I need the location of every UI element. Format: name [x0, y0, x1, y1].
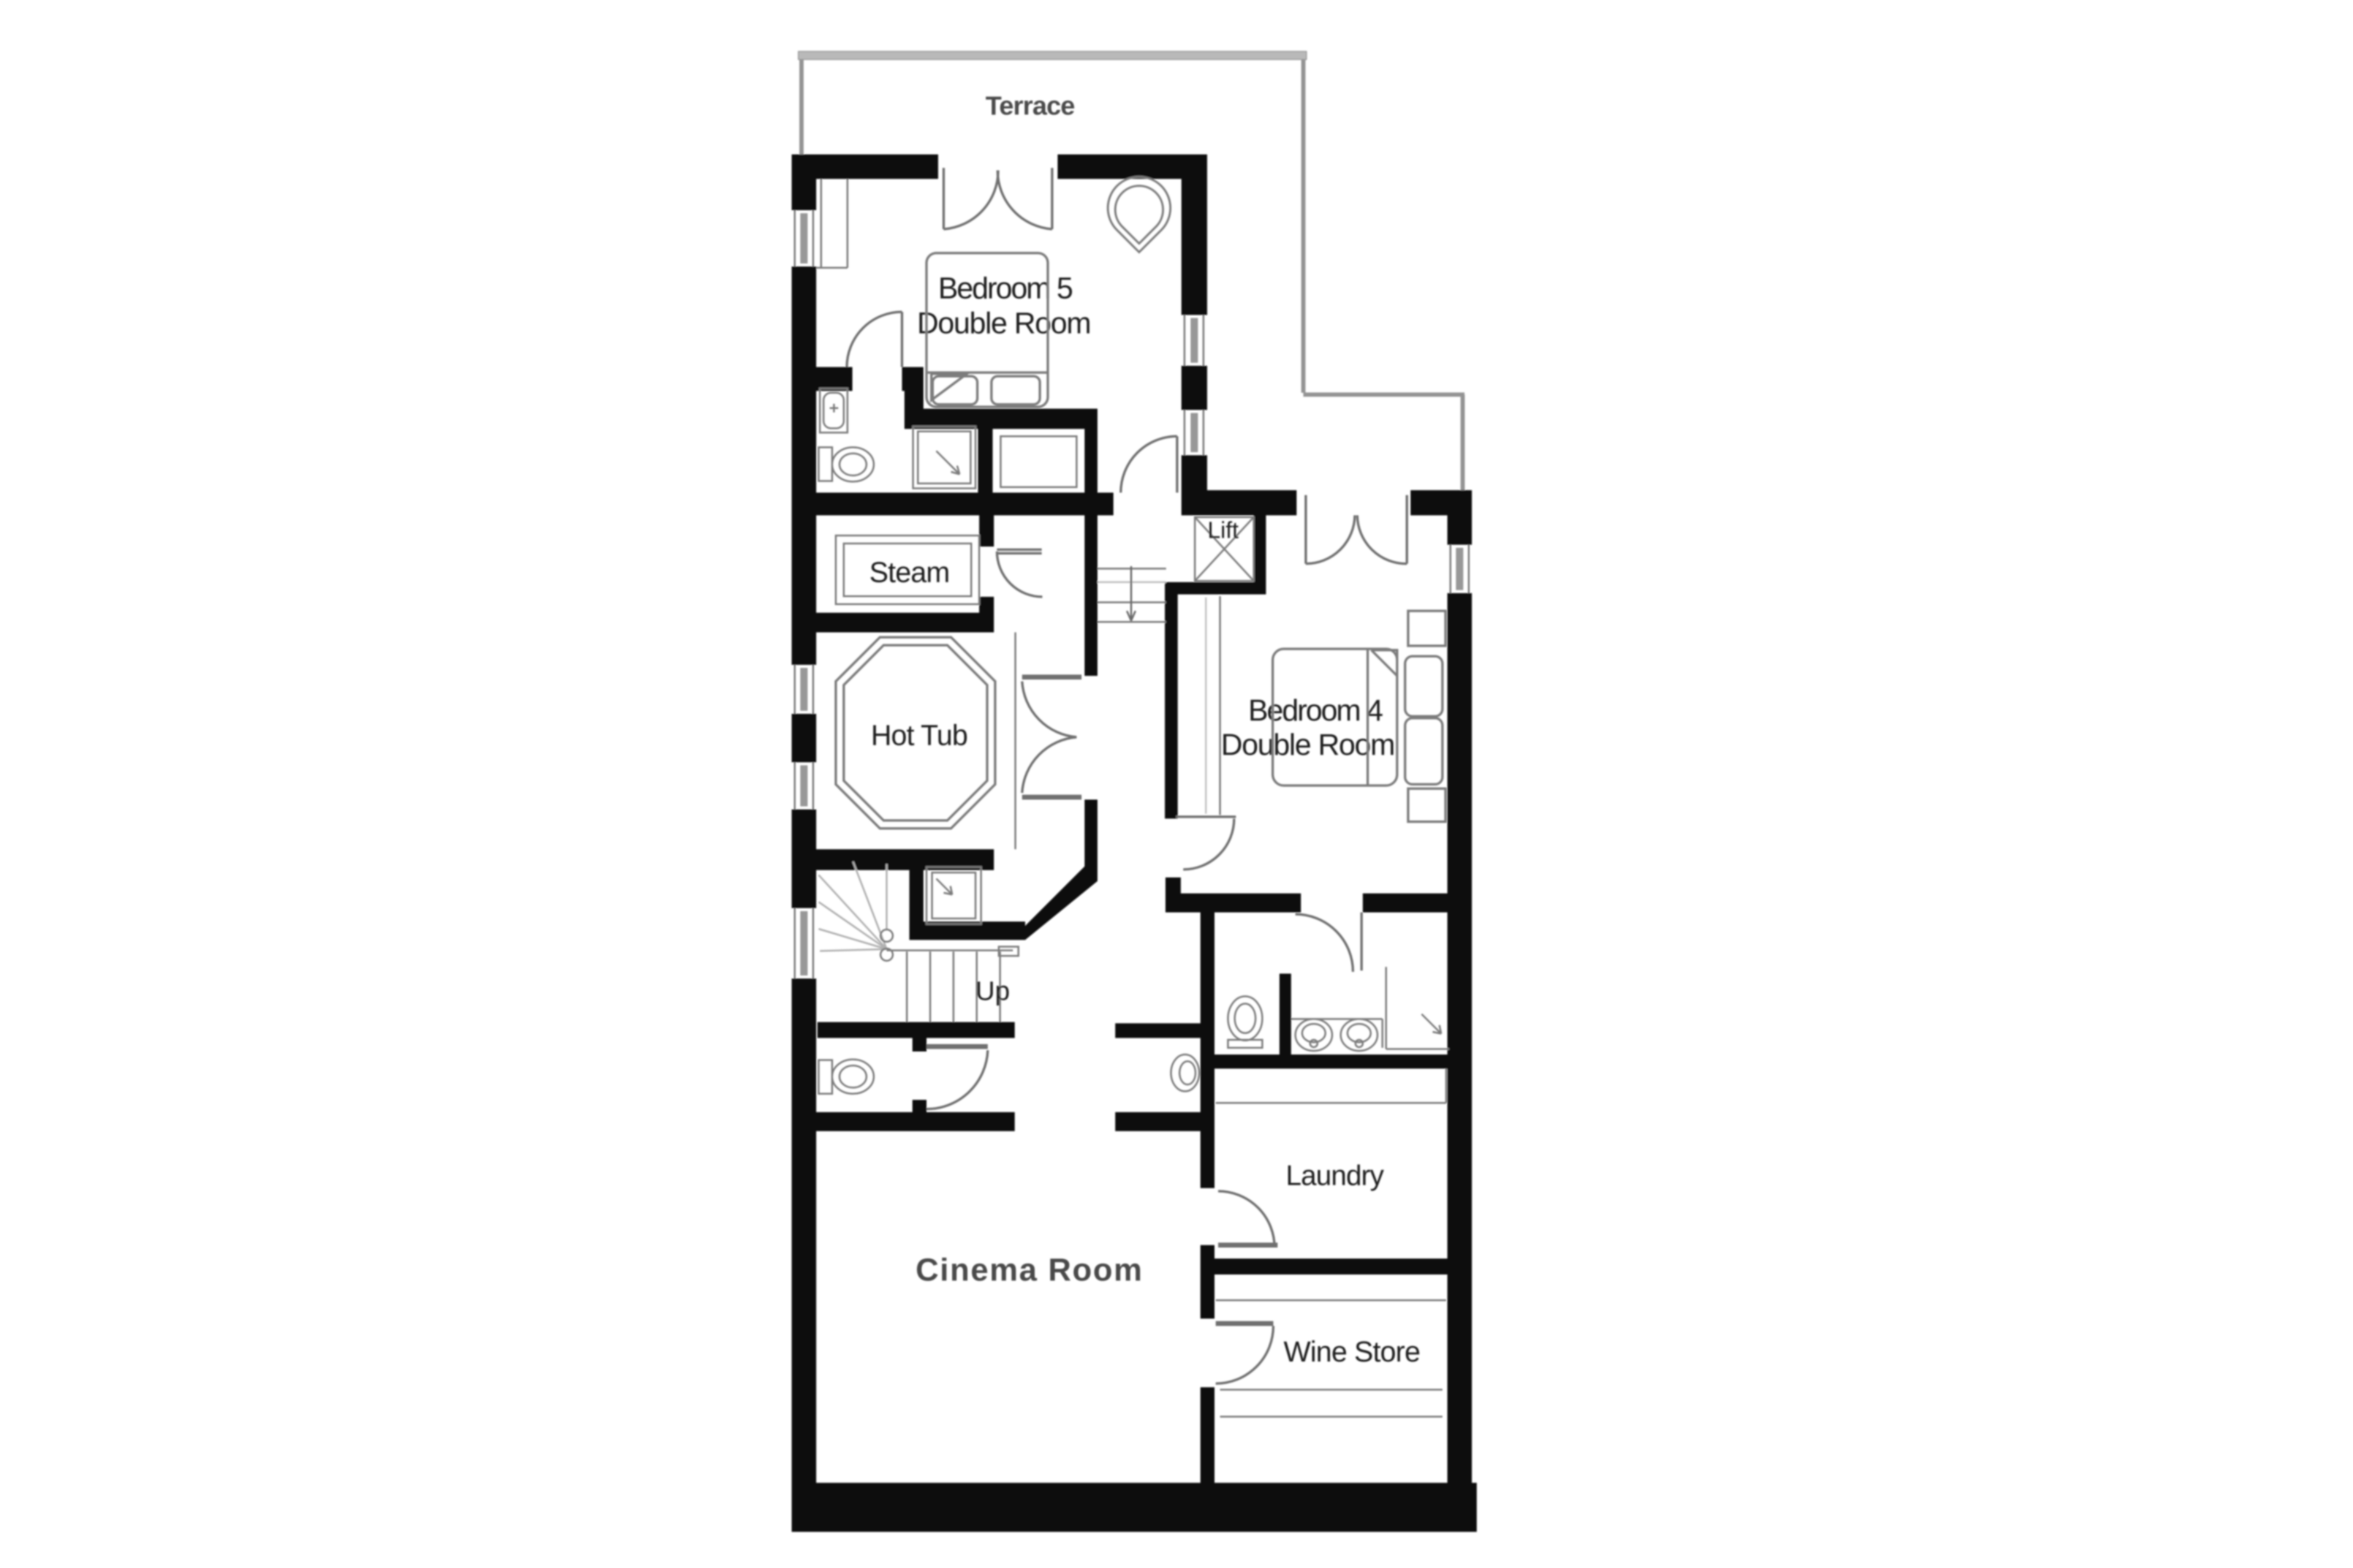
svg-text:Up: Up [976, 976, 1010, 1006]
svg-text:Steam: Steam [870, 556, 950, 588]
svg-text:Laundry: Laundry [1286, 1159, 1384, 1191]
svg-text:Cinema Room: Cinema Room [915, 1252, 1143, 1288]
svg-text:Double Room: Double Room [917, 307, 1090, 340]
svg-text:Terrace: Terrace [985, 91, 1074, 121]
svg-text:Bedroom 5: Bedroom 5 [938, 272, 1072, 305]
svg-text:Bedroom 4: Bedroom 4 [1248, 694, 1382, 727]
svg-text:Hot Tub: Hot Tub [871, 719, 968, 751]
svg-text:Lift: Lift [1208, 518, 1239, 543]
svg-text:Wine Store: Wine Store [1284, 1335, 1420, 1368]
